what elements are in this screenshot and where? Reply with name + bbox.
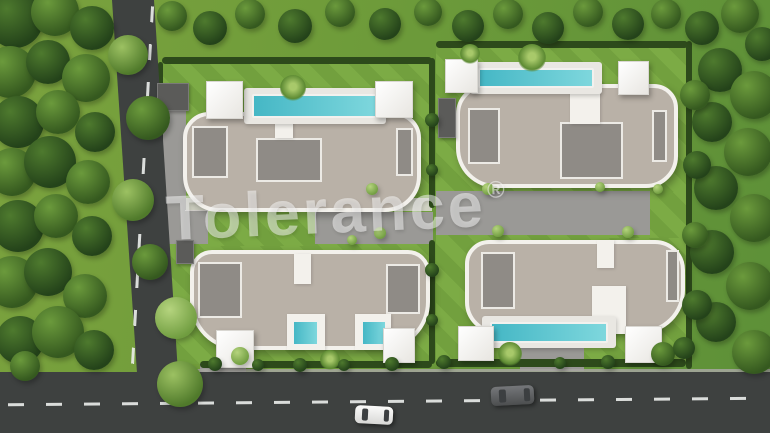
tree: [75, 112, 115, 152]
shrub: [425, 113, 439, 127]
tree: [452, 10, 484, 42]
shrub: [426, 314, 438, 326]
watermark: Tolerance®: [165, 173, 507, 251]
shrub: [601, 355, 615, 369]
pool: [490, 322, 608, 343]
shrub: [338, 359, 350, 371]
tree: [726, 262, 770, 310]
tree: [414, 0, 442, 26]
palm-tree: [498, 342, 522, 366]
roof-terrace: [386, 264, 420, 314]
shrub: [385, 357, 399, 371]
palm-tree: [320, 350, 340, 370]
pergola: [458, 326, 494, 361]
tree: [112, 179, 154, 221]
tree: [732, 330, 770, 374]
tree: [730, 71, 770, 119]
palm-tree: [518, 44, 546, 72]
tree: [278, 9, 312, 43]
roof-terrace: [666, 250, 679, 302]
tree: [36, 90, 80, 134]
tree: [132, 244, 168, 280]
tree: [532, 12, 564, 44]
tree: [126, 96, 170, 140]
tree: [493, 0, 523, 29]
pergola: [375, 81, 413, 118]
aerial-site-plan-render: Tolerance®: [0, 0, 770, 433]
tree: [680, 80, 710, 110]
shrub: [622, 226, 634, 238]
tree: [72, 216, 112, 256]
tree: [573, 0, 603, 27]
shrub: [425, 263, 439, 277]
tree: [66, 160, 110, 204]
pool: [252, 94, 378, 118]
shrub: [595, 182, 605, 192]
shrub: [208, 357, 222, 371]
pergola: [618, 61, 649, 95]
tree: [155, 297, 197, 339]
roof-terrace: [560, 122, 623, 179]
tree: [612, 8, 644, 40]
roof-terrace: [652, 110, 667, 162]
shrub: [252, 359, 264, 371]
pool: [292, 320, 319, 346]
tree: [724, 128, 770, 176]
pergola: [206, 81, 243, 119]
hedge: [162, 57, 432, 64]
tree: [730, 194, 770, 242]
roof-terrace: [256, 138, 322, 182]
tree: [651, 342, 675, 366]
tree: [74, 330, 114, 370]
palm-tree: [280, 75, 306, 101]
roof-notch: [597, 240, 614, 268]
tree: [651, 0, 681, 29]
shrub: [554, 357, 566, 369]
roof-notch: [294, 254, 311, 284]
pergola: [445, 59, 478, 93]
shrub: [293, 358, 307, 372]
tree: [369, 8, 401, 40]
tree: [70, 6, 114, 50]
watermark-text: Tolerance: [164, 170, 487, 254]
tree: [157, 361, 203, 407]
roof-terrace: [481, 252, 515, 309]
tree: [10, 351, 40, 381]
tree: [683, 151, 711, 179]
white-car: [355, 405, 394, 425]
roof-terrace: [396, 128, 413, 176]
tree: [157, 1, 187, 31]
tree: [682, 290, 712, 320]
dark-car: [491, 385, 535, 406]
palm-tree: [460, 44, 480, 64]
roof-terrace: [198, 262, 242, 318]
garage: [438, 98, 456, 138]
tree: [673, 337, 695, 359]
tree: [325, 0, 355, 27]
tree: [682, 222, 708, 248]
shrub: [231, 347, 249, 365]
tree: [108, 35, 148, 75]
tree: [745, 27, 770, 61]
tree: [235, 0, 265, 29]
tree: [193, 11, 227, 45]
shrub: [653, 184, 663, 194]
roof-terrace: [468, 108, 500, 164]
shrub: [437, 355, 451, 369]
registered-trademark-icon: ®: [486, 176, 505, 204]
roof-terrace: [192, 126, 228, 178]
tree: [685, 11, 719, 45]
